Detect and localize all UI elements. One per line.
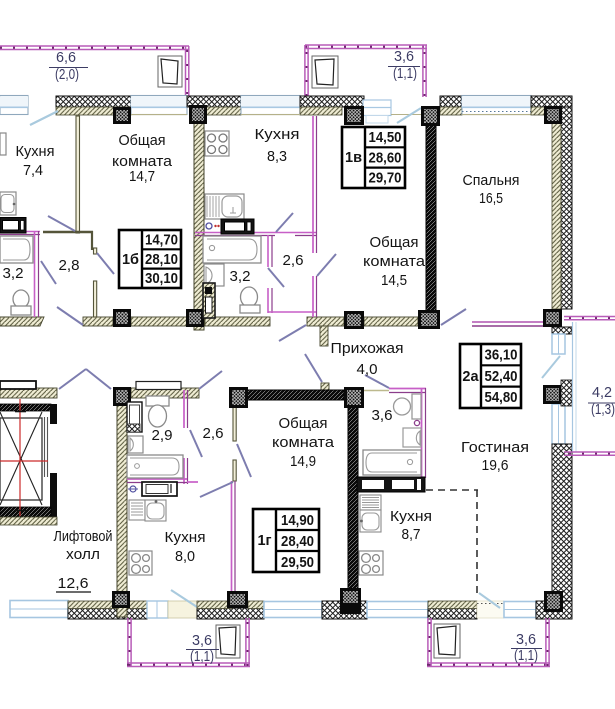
svg-text:4,2: 4,2 <box>592 385 612 401</box>
svg-text:Кухня: Кухня <box>165 529 206 546</box>
svg-text:Кухня: Кухня <box>390 508 432 525</box>
svg-text:30,10: 30,10 <box>145 271 178 287</box>
svg-text:1г: 1г <box>257 533 271 549</box>
svg-text:Общая: Общая <box>279 415 328 432</box>
svg-text:Спальня: Спальня <box>463 172 520 189</box>
svg-text:(1,1): (1,1) <box>393 66 417 82</box>
svg-text:комната: комната <box>363 253 426 270</box>
svg-text:14,50: 14,50 <box>369 130 402 146</box>
svg-text:3,2: 3,2 <box>230 268 251 285</box>
svg-text:комната: комната <box>272 434 335 451</box>
svg-text:14,90: 14,90 <box>281 513 314 529</box>
svg-text:(1,3): (1,3) <box>591 402 615 418</box>
svg-text:(1,1): (1,1) <box>514 648 538 664</box>
svg-text:Общая: Общая <box>119 132 166 149</box>
svg-text:8,3: 8,3 <box>267 148 287 165</box>
svg-text:2,6: 2,6 <box>283 252 304 269</box>
svg-text:36,10: 36,10 <box>485 348 518 364</box>
svg-text:2,6: 2,6 <box>203 425 224 442</box>
svg-text:Лифтовой: Лифтовой <box>54 528 113 545</box>
svg-text:3,6: 3,6 <box>394 49 414 65</box>
svg-text:8,7: 8,7 <box>402 526 421 543</box>
svg-text:16,5: 16,5 <box>479 190 503 207</box>
svg-text:4,0: 4,0 <box>357 361 378 378</box>
svg-text:14,7: 14,7 <box>129 168 155 185</box>
svg-text:1в: 1в <box>345 150 362 166</box>
svg-text:52,40: 52,40 <box>485 369 518 385</box>
svg-text:14,9: 14,9 <box>290 453 316 470</box>
svg-text:Общая: Общая <box>370 234 419 251</box>
svg-text:2а: 2а <box>462 369 479 385</box>
svg-text:2,9: 2,9 <box>152 427 173 444</box>
svg-text:8,0: 8,0 <box>175 548 195 565</box>
svg-text:(2,0): (2,0) <box>55 67 79 83</box>
svg-text:3,6: 3,6 <box>372 407 393 424</box>
svg-text:6,6: 6,6 <box>56 50 76 66</box>
svg-text:холл: холл <box>66 546 100 563</box>
svg-text:3,6: 3,6 <box>516 632 536 648</box>
svg-text:14,5: 14,5 <box>381 272 407 289</box>
svg-text:54,80: 54,80 <box>485 390 518 406</box>
svg-text:1б: 1б <box>122 252 139 268</box>
svg-text:Прихожая: Прихожая <box>331 340 404 357</box>
svg-text:14,70: 14,70 <box>145 233 178 249</box>
svg-text:29,70: 29,70 <box>369 171 402 187</box>
svg-text:28,40: 28,40 <box>281 534 314 550</box>
svg-text:3,6: 3,6 <box>192 633 212 649</box>
svg-text:3,2: 3,2 <box>3 265 24 282</box>
svg-text:Гостиная: Гостиная <box>461 439 529 456</box>
svg-text:Кухня: Кухня <box>255 126 300 143</box>
svg-text:28,10: 28,10 <box>145 252 178 268</box>
svg-text:7,4: 7,4 <box>23 162 43 179</box>
svg-text:28,60: 28,60 <box>369 150 402 166</box>
svg-text:29,50: 29,50 <box>281 555 314 571</box>
svg-text:(1,1): (1,1) <box>190 649 214 665</box>
svg-text:2,8: 2,8 <box>59 257 80 274</box>
svg-text:12,6: 12,6 <box>58 575 89 592</box>
svg-text:Кухня: Кухня <box>16 143 55 160</box>
svg-text:19,6: 19,6 <box>482 457 509 474</box>
